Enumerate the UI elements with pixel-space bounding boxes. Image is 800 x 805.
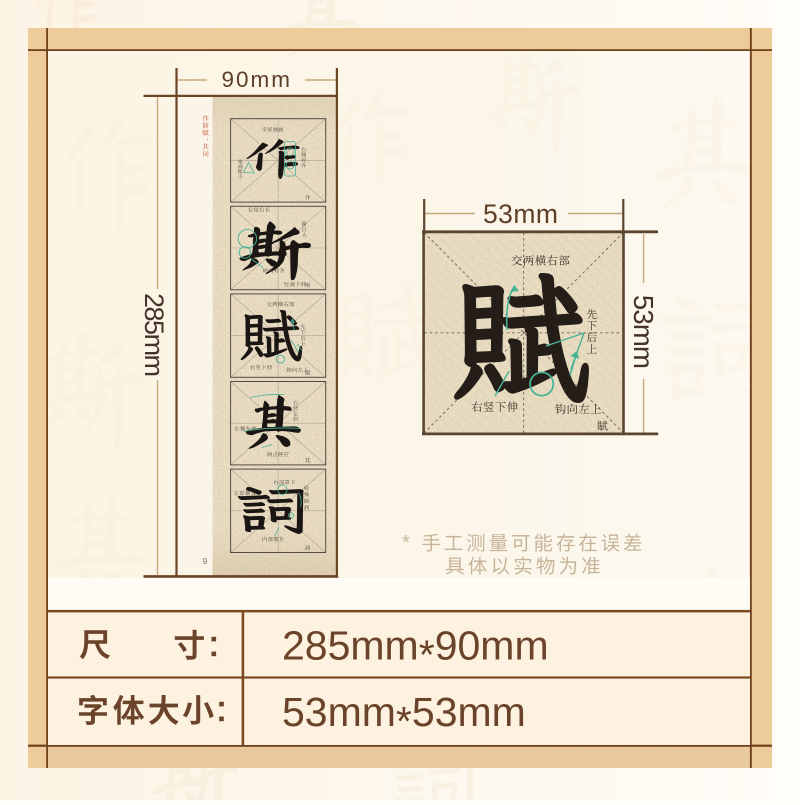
svg-text:9: 9 — [203, 556, 208, 566]
svg-text:53mm: 53mm — [483, 199, 558, 229]
svg-text:285mm: 285mm — [139, 293, 169, 376]
svg-text:90mm: 90mm — [222, 67, 293, 92]
svg-text:53mm: 53mm — [628, 295, 659, 368]
svg-text:*: * — [402, 532, 410, 554]
